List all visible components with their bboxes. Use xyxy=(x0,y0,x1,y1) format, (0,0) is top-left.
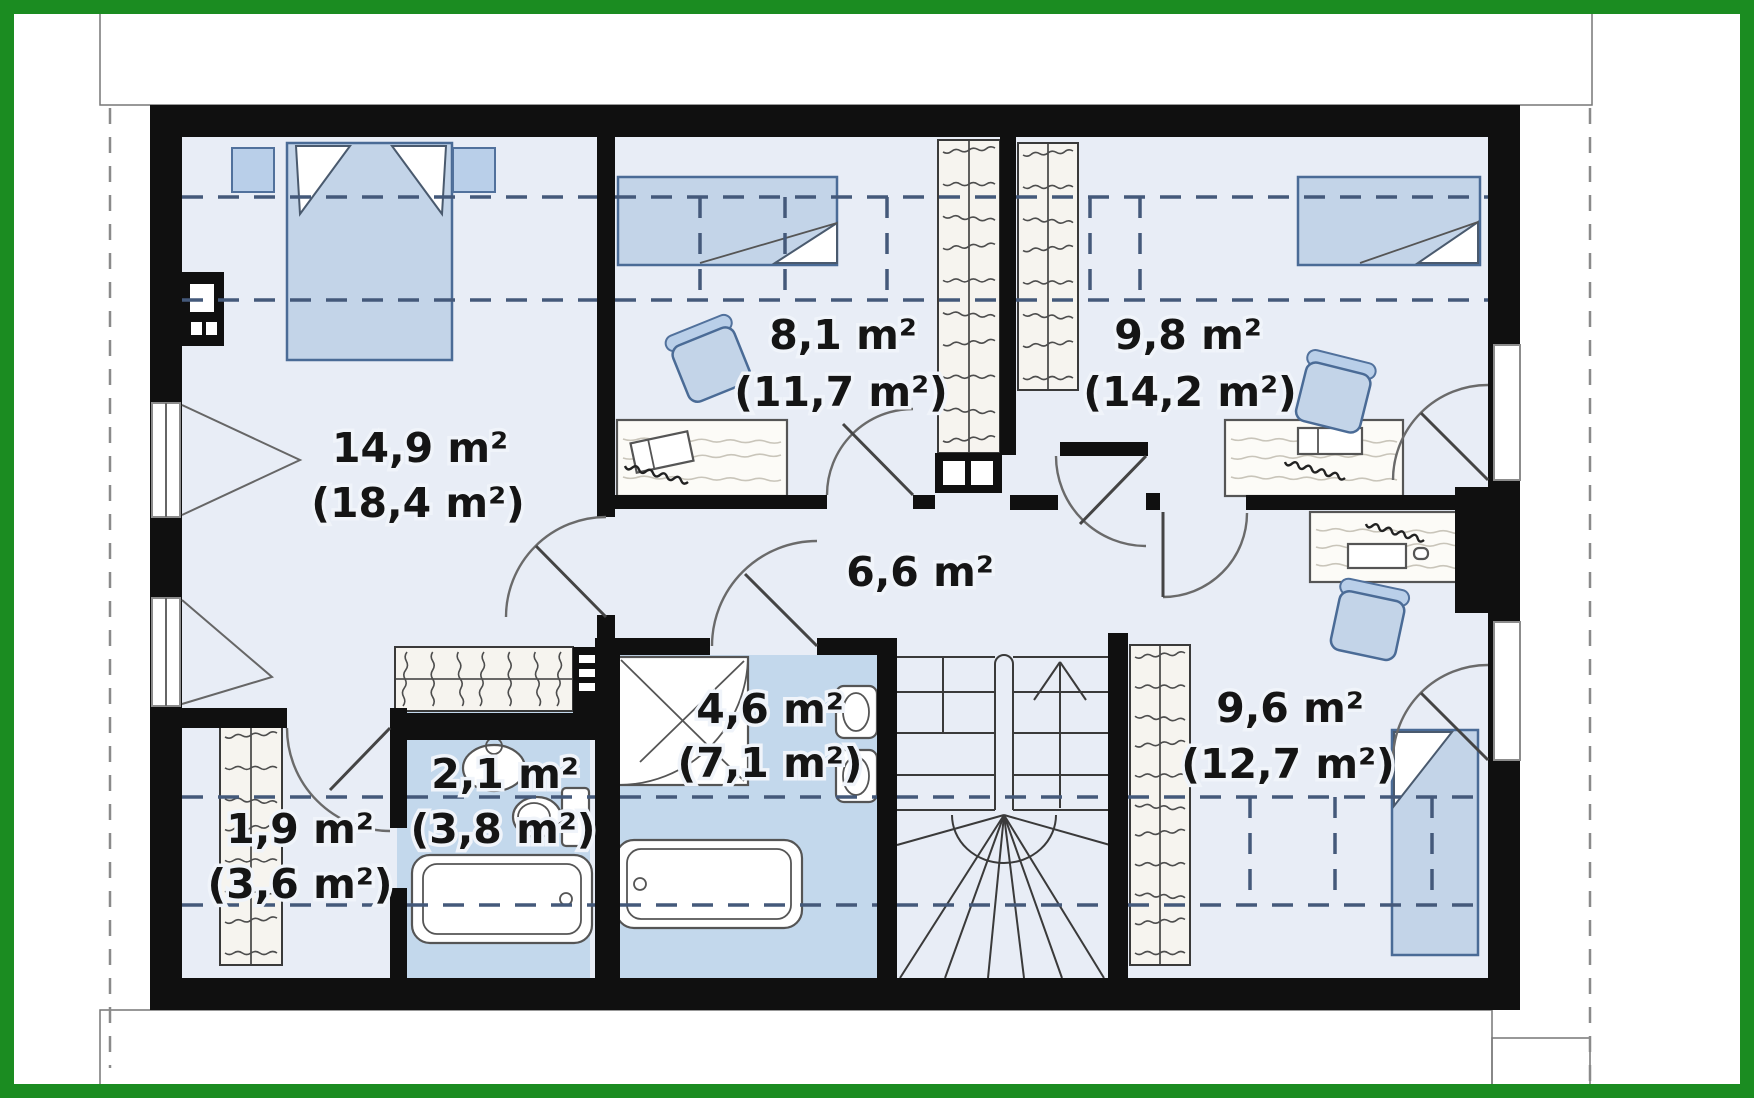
room-label-closet-total: (3,6 m²) xyxy=(207,860,392,908)
balcony-door-right-2 xyxy=(1494,622,1520,760)
wall-partition xyxy=(1246,495,1488,510)
wall-partition xyxy=(182,708,287,728)
room-label-bedroom-main-total: (18,4 m²) xyxy=(311,479,525,527)
nightstand xyxy=(232,148,274,192)
wall-exterior-top xyxy=(150,105,1520,137)
wall-partition xyxy=(595,638,620,978)
wall-partition xyxy=(1108,633,1128,978)
room-label-bedroom-2-total: (11,7 m²) xyxy=(734,368,948,416)
room-label-bathroom-total: (7,1 m²) xyxy=(677,739,862,787)
wardrobe-bedroom-3 xyxy=(1018,143,1078,390)
bathtub xyxy=(616,840,802,928)
wall-partition xyxy=(407,713,595,740)
wall-partition xyxy=(877,638,897,978)
wall-partition xyxy=(595,638,710,655)
wall-partition xyxy=(390,708,407,828)
room-label-toilet-total: (3,8 m²) xyxy=(410,805,595,853)
room-label-bedroom-4: 9,6 m² xyxy=(1216,684,1364,732)
wardrobe-bedroom-4 xyxy=(1130,645,1190,965)
wall-partition xyxy=(1010,495,1058,510)
room-label-closet: 1,9 m² xyxy=(226,805,374,853)
wall-exterior-right xyxy=(1488,105,1520,1010)
bathtub-small xyxy=(412,855,592,943)
door-beam xyxy=(1060,442,1148,456)
wall-exterior-bottom xyxy=(150,978,1520,1010)
room-label-toilet: 2,1 m² xyxy=(431,750,579,798)
wall-partition xyxy=(597,455,615,517)
wall-partition xyxy=(913,495,935,509)
mouse xyxy=(1414,548,1428,559)
room-label-bedroom-main: 14,9 m² xyxy=(332,424,508,472)
wardrobe-bedroom-main xyxy=(395,647,573,711)
wall-partition xyxy=(1000,135,1016,455)
room-label-bathroom: 4,6 m² xyxy=(696,685,844,733)
room-label-bedroom-2: 8,1 m² xyxy=(769,311,917,359)
floor-plan: 14,9 m² (18,4 m²) 8,1 m² (11,7 m²) 9,8 m… xyxy=(0,0,1754,1098)
balcony-door-right-1 xyxy=(1494,345,1520,480)
nightstand xyxy=(453,148,495,192)
wall-exterior-left xyxy=(150,105,182,1010)
wall-partition xyxy=(615,495,827,509)
room-label-hallway: 6,6 m² xyxy=(846,548,994,596)
room-label-bedroom-4-total: (12,7 m²) xyxy=(1181,740,1395,788)
wall-partition xyxy=(390,888,407,978)
door-post xyxy=(1146,493,1160,510)
room-label-bedroom-3: 9,8 m² xyxy=(1114,311,1262,359)
wall-partition xyxy=(597,135,615,460)
wall-pillar xyxy=(1455,487,1488,613)
room-label-bedroom-3-total: (14,2 m²) xyxy=(1083,368,1297,416)
